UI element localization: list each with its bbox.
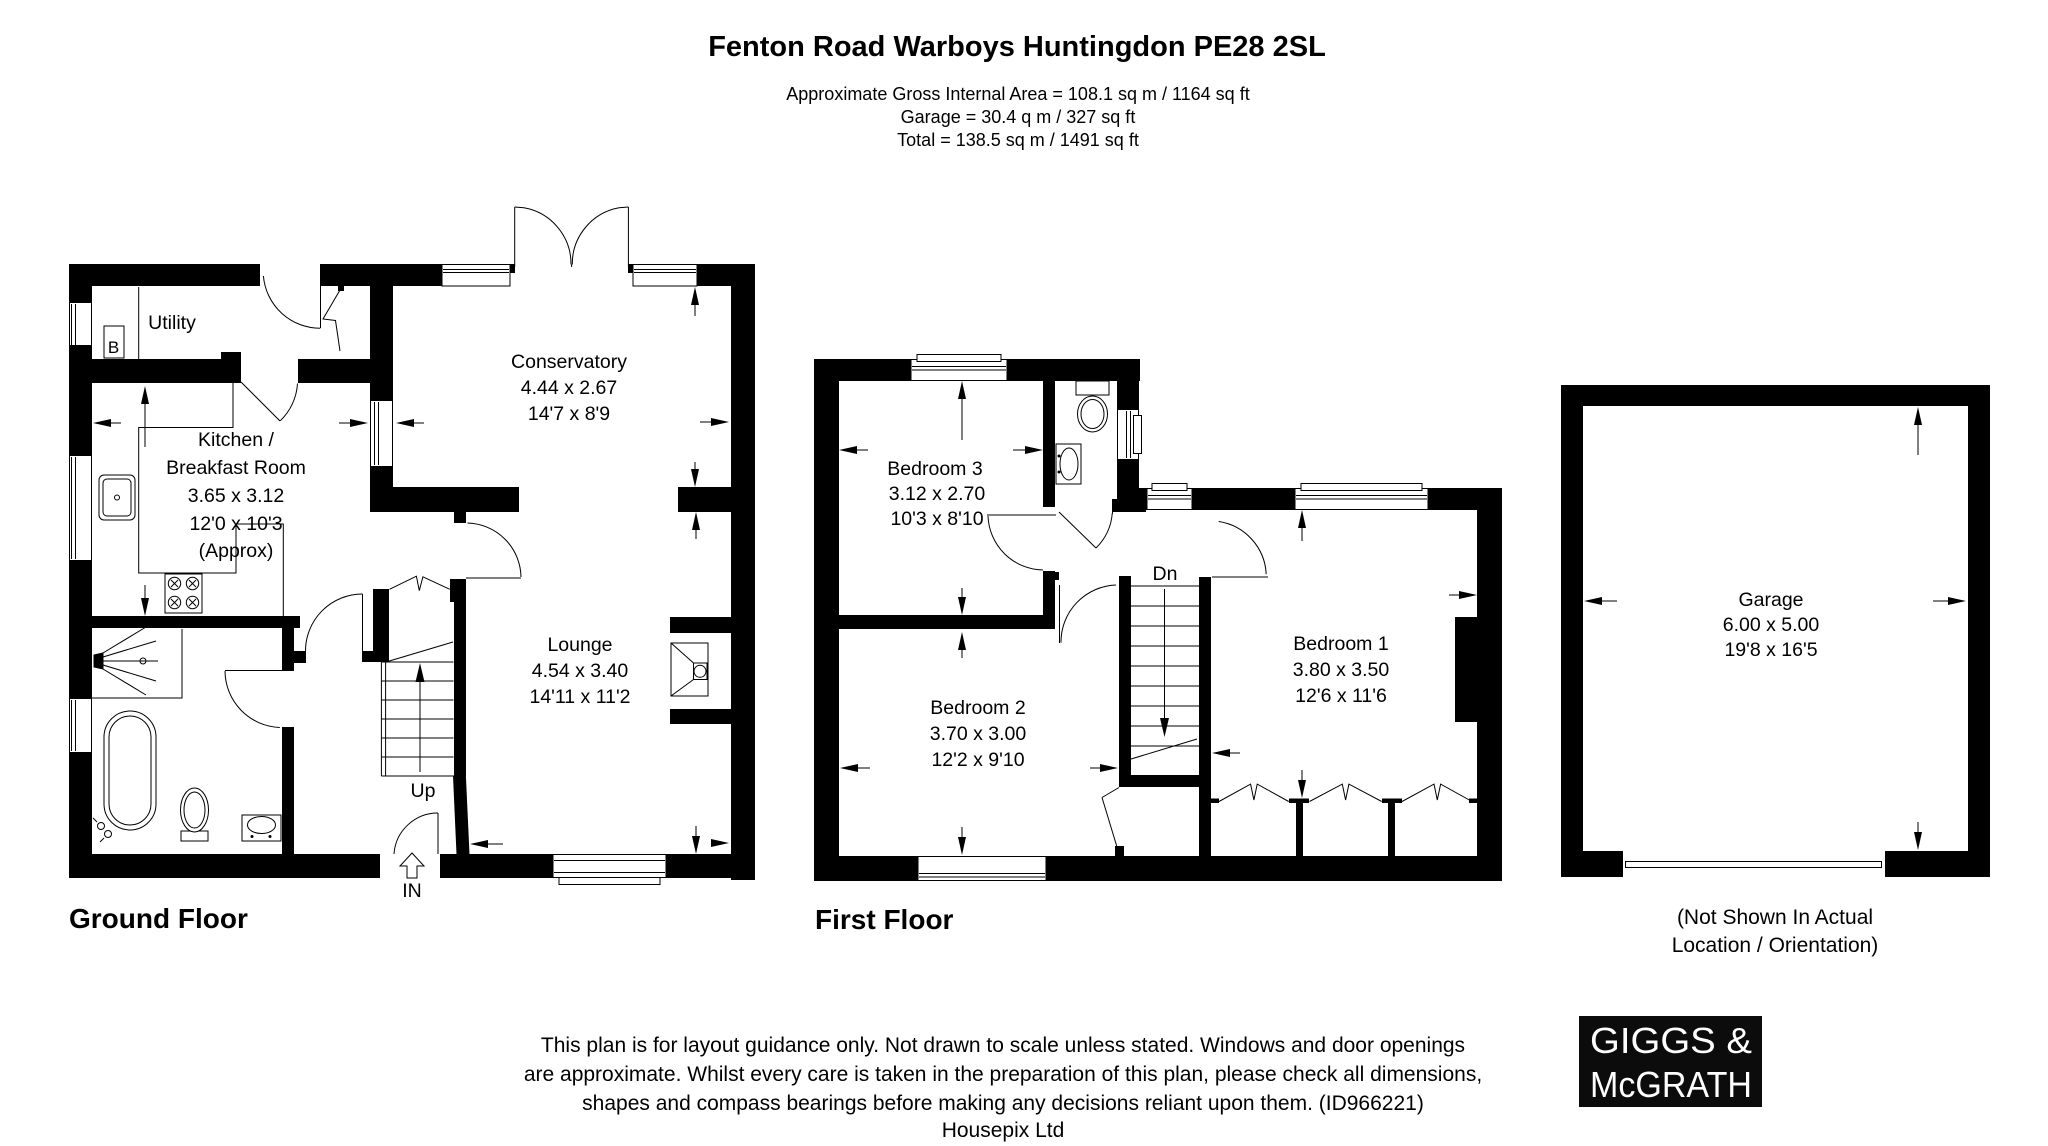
svg-text:First Floor: First Floor (815, 904, 954, 935)
svg-text:Bedroom 3: Bedroom 3 (887, 458, 982, 480)
svg-text:Bedroom 1: Bedroom 1 (1293, 633, 1388, 655)
svg-text:Total = 138.5 sq m / 1491 sq f: Total = 138.5 sq m / 1491 sq ft (897, 130, 1139, 150)
svg-text:3.70 x 3.00: 3.70 x 3.00 (930, 723, 1027, 745)
svg-text:are approximate. Whilst every: are approximate. Whilst every care is ta… (524, 1063, 1482, 1086)
svg-text:12'0 x 10'3: 12'0 x 10'3 (189, 513, 282, 535)
svg-text:Utility: Utility (148, 312, 196, 334)
svg-text:Garage = 30.4 q m / 327 sq ft: Garage = 30.4 q m / 327 sq ft (901, 107, 1136, 127)
svg-text:Up: Up (411, 780, 436, 802)
svg-text:This plan is for layout guidan: This plan is for layout guidance only. N… (541, 1034, 1465, 1057)
svg-text:Kitchen /: Kitchen / (198, 429, 274, 451)
svg-text:Garage: Garage (1738, 589, 1803, 611)
svg-text:Approximate Gross Internal Are: Approximate Gross Internal Area = 108.1 … (786, 84, 1249, 104)
svg-text:19'8 x 16'5: 19'8 x 16'5 (1724, 639, 1817, 661)
svg-text:(Not Shown In Actual: (Not Shown In Actual (1677, 906, 1873, 929)
svg-text:Location / Orientation): Location / Orientation) (1672, 934, 1879, 957)
svg-text:Lounge: Lounge (547, 634, 612, 656)
svg-text:6.00 x 5.00: 6.00 x 5.00 (1723, 614, 1820, 636)
svg-text:3.80 x 3.50: 3.80 x 3.50 (1293, 659, 1390, 681)
svg-text:14'7 x 8'9: 14'7 x 8'9 (528, 403, 610, 425)
svg-text:GIGGS &: GIGGS & (1590, 1020, 1752, 1061)
svg-text:12'6 x 11'6: 12'6 x 11'6 (1295, 685, 1387, 707)
svg-text:Conservatory: Conservatory (511, 351, 627, 373)
svg-text:Bedroom 2: Bedroom 2 (930, 697, 1025, 719)
svg-text:10'3 x 8'10: 10'3 x 8'10 (890, 508, 983, 530)
svg-text:(Approx): (Approx) (199, 540, 274, 562)
svg-text:Breakfast Room: Breakfast Room (166, 457, 306, 479)
svg-text:B: B (108, 338, 119, 357)
svg-text:4.44 x 2.67: 4.44 x 2.67 (521, 377, 618, 399)
svg-text:Housepix Ltd: Housepix Ltd (942, 1119, 1065, 1142)
svg-text:3.12 x 2.70: 3.12 x 2.70 (889, 483, 986, 505)
svg-text:3.65 x 3.12: 3.65 x 3.12 (188, 485, 285, 507)
svg-text:Ground Floor: Ground Floor (69, 903, 248, 934)
svg-text:14'11 x 11'2: 14'11 x 11'2 (529, 686, 630, 708)
svg-text:IN: IN (402, 880, 422, 902)
svg-text:Fenton Road Warboys Huntingdon: Fenton Road Warboys Huntingdon PE28 2SL (708, 31, 1326, 63)
svg-text:McGRATH: McGRATH (1590, 1064, 1752, 1105)
svg-text:shapes and compass bearings be: shapes and compass bearings before makin… (582, 1092, 1424, 1115)
svg-text:Dn: Dn (1153, 563, 1178, 585)
svg-text:4.54 x 3.40: 4.54 x 3.40 (532, 660, 629, 682)
svg-text:12'2 x 9'10: 12'2 x 9'10 (931, 749, 1024, 771)
